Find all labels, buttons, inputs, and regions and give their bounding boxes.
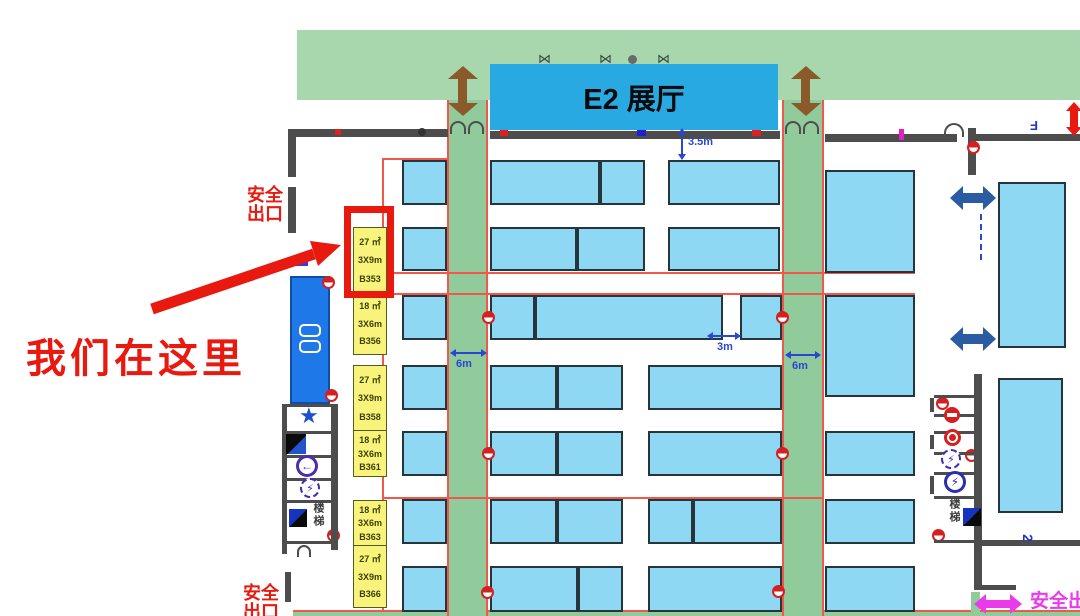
door-arc-icon <box>944 123 964 137</box>
booth <box>825 170 915 273</box>
hall-banner: E2 展厅 <box>490 64 778 130</box>
flow-arrow-icon <box>950 327 996 351</box>
wall-segment <box>934 395 974 398</box>
booth <box>668 160 780 205</box>
booth <box>402 160 447 205</box>
booth <box>490 227 577 271</box>
lightning-glyph: ⚡ <box>947 453 955 466</box>
booth-label-strip: 18 ㎡ 3X6m B363 27 ㎡ 3X9m B366 <box>353 500 387 608</box>
wall-letter-mark: F <box>1030 118 1038 133</box>
stairs-label: 楼梯 <box>946 498 962 524</box>
booth-label: 27 ㎡ 3X9m B366 <box>354 545 386 607</box>
booth-area: 27 ㎡ <box>359 554 381 564</box>
booth <box>825 566 915 612</box>
fire-point-icon <box>481 586 494 599</box>
wall-segment <box>976 134 1080 141</box>
dimension-arrow-vertical <box>676 128 688 160</box>
booth-size: 3X6m <box>358 319 382 329</box>
booth <box>648 431 782 476</box>
direction-circle-icon: ← <box>296 455 318 477</box>
fire-point-icon <box>776 447 789 460</box>
flow-arrow-icon <box>950 186 996 210</box>
dimension-label: 3m <box>717 341 733 353</box>
dimension-label: 3.5m <box>688 136 713 148</box>
booth <box>490 160 600 205</box>
booth-label: 18 ㎡ 3X6m B356 <box>354 292 386 354</box>
safety-exit-label: 安全 出口 <box>247 186 283 224</box>
door-arc-icon <box>785 121 801 134</box>
wall-segment <box>974 374 982 554</box>
electric-icon: ⚡ <box>944 471 966 493</box>
booth <box>577 227 645 271</box>
facility-icon <box>299 340 321 353</box>
booth-area: 18 ㎡ <box>359 505 381 515</box>
booth-code: B361 <box>359 462 381 472</box>
fire-point-icon <box>325 389 338 402</box>
wall-segment <box>930 476 934 494</box>
wall-marker <box>500 130 508 136</box>
booth-area: 27 ㎡ <box>359 375 381 385</box>
arrow-left-glyph: ← <box>301 459 313 473</box>
no-entry-icon <box>944 407 960 423</box>
wall-marker <box>335 129 341 135</box>
fire-point-icon <box>776 311 789 324</box>
booth-size: 3X9m <box>358 393 382 403</box>
booth <box>402 431 447 476</box>
booth <box>490 431 557 476</box>
booth <box>402 227 447 271</box>
stairs-square-icon <box>963 508 981 526</box>
booth <box>402 365 447 410</box>
flag-square-icon <box>286 434 306 454</box>
booth <box>490 566 578 612</box>
safety-exit-line: 安全 <box>247 186 283 205</box>
booth-code: B356 <box>359 336 381 346</box>
location-callout: 我们在这里 <box>26 326 246 384</box>
dashed-guide-line <box>980 214 984 260</box>
wall-segment <box>490 131 780 139</box>
fire-point-icon <box>482 311 495 324</box>
booth-size: 3X9m <box>358 572 382 582</box>
stairs-square-icon <box>289 509 307 527</box>
booth <box>490 295 535 340</box>
facility-icon <box>299 324 321 337</box>
lightning-glyph: ⚡ <box>306 482 314 495</box>
highlight-box <box>344 206 394 298</box>
electric-dashed-icon: ⚡ <box>941 449 961 469</box>
star-icon: ★ <box>299 405 319 427</box>
booth <box>557 499 623 544</box>
wall-segment <box>288 137 296 177</box>
booth-label-strip: 27 ㎡ 3X9m B358 18 ㎡ 3X6m B361 <box>353 365 387 477</box>
exit-arrow-icon <box>974 594 1022 614</box>
floor-plan-canvas: ⋈ ⋈ ⋈ E2 展厅 <box>0 0 1080 616</box>
wall-segment <box>980 585 1016 590</box>
zone-number: 2 <box>1020 534 1036 542</box>
dimension-label: 6m <box>792 360 808 372</box>
booth-size: 3X6m <box>358 518 382 528</box>
wall-segment <box>285 572 291 602</box>
wall-segment <box>331 404 338 550</box>
booth-label: 27 ㎡ 3X9m B358 <box>354 366 386 430</box>
safety-exit-line: 出口 <box>247 205 283 224</box>
electric-dashed-icon: ⚡ <box>300 478 320 498</box>
door-arc-icon <box>803 121 819 134</box>
booth <box>648 566 782 612</box>
exit-arrow-icon <box>1066 102 1080 136</box>
entrance-arrow-icon <box>448 66 478 116</box>
fire-point-icon <box>322 276 335 289</box>
booth-code: B363 <box>359 532 381 542</box>
booth <box>490 499 557 544</box>
booth-label: 18 ㎡ 3X6m B363 <box>354 501 386 545</box>
booth <box>402 499 447 544</box>
booth <box>402 295 447 340</box>
safety-exit-line: 出口 <box>243 603 279 616</box>
booth-size: 3X6m <box>358 449 382 459</box>
wall-marker <box>752 130 761 136</box>
wall-segment <box>825 134 957 142</box>
booth <box>825 499 915 544</box>
booth <box>557 365 623 410</box>
booth <box>693 499 782 544</box>
lightning-glyph: ⚡ <box>951 475 959 489</box>
safety-exit-label: 安全 出口 <box>243 584 279 616</box>
door-arc-icon <box>450 121 466 134</box>
fire-point-icon <box>967 141 980 154</box>
wall-segment <box>930 435 934 449</box>
booth <box>578 566 623 612</box>
dimension-label: 6m <box>456 358 472 370</box>
booth <box>402 566 447 612</box>
booth <box>557 431 623 476</box>
booth-code: B358 <box>359 412 381 422</box>
booth <box>998 182 1066 348</box>
booth <box>825 431 915 476</box>
wall-segment <box>930 398 934 412</box>
door-arc-icon <box>297 545 311 557</box>
safety-exit-line: 安全 <box>243 584 279 603</box>
wall-marker <box>637 130 646 136</box>
booth <box>648 365 782 410</box>
booth-label: 18 ㎡ 3X6m B361 <box>354 430 386 476</box>
door-arc-icon <box>468 121 484 134</box>
stairs-label: 楼梯 <box>310 502 326 528</box>
wall-segment <box>934 540 974 543</box>
alarm-dot-icon <box>944 429 961 446</box>
wall-marker <box>296 261 308 266</box>
service-desk <box>290 276 330 404</box>
booth-code: B366 <box>359 589 381 599</box>
booth <box>648 499 693 544</box>
wall-marker <box>899 129 904 140</box>
booth-area: 18 ㎡ <box>359 435 381 445</box>
fire-point-icon <box>772 585 785 598</box>
safety-exit-label: 安全出口 <box>1030 586 1080 613</box>
booth <box>668 227 780 271</box>
booth <box>490 365 557 410</box>
wall-segment <box>282 541 338 544</box>
entrance-arrow-icon <box>791 66 821 116</box>
booth <box>825 295 915 397</box>
booth <box>535 295 723 340</box>
wall-marker <box>418 128 426 136</box>
column-dot-icon <box>628 55 637 64</box>
booth <box>998 378 1063 513</box>
booth-area: 18 ㎡ <box>359 301 381 311</box>
wall-segment <box>288 187 296 233</box>
fire-point-icon <box>482 447 495 460</box>
booth <box>600 160 645 205</box>
